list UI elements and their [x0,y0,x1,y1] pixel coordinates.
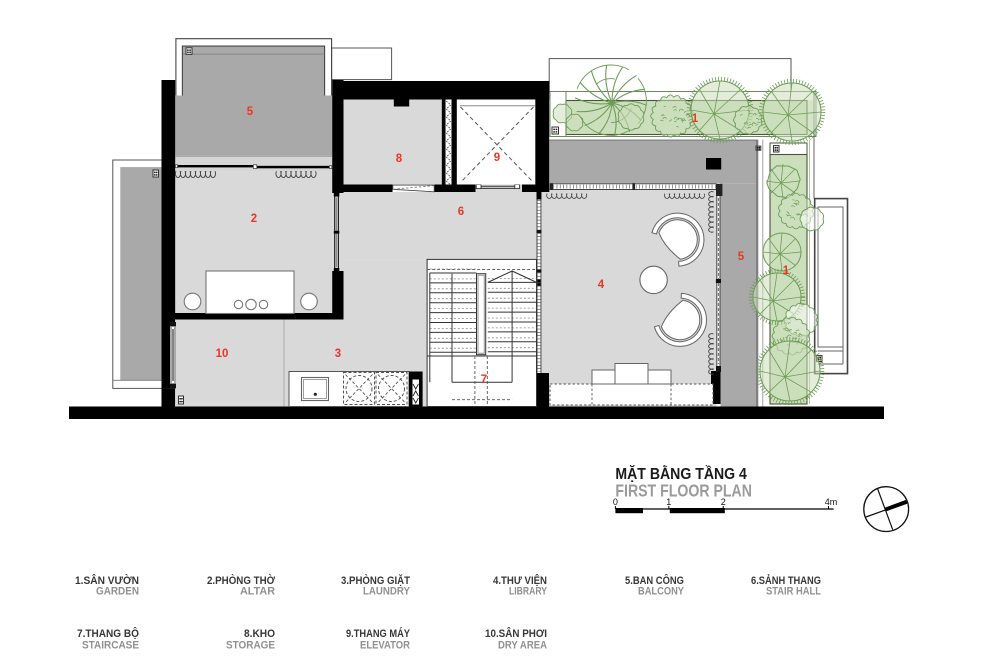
svg-text:LAUNDRY: LAUNDRY [363,586,411,598]
svg-text:10.SÂN PHƠI: 10.SÂN PHƠI [485,627,547,640]
svg-text:10: 10 [216,348,229,360]
svg-text:0: 0 [613,497,618,507]
svg-text:STORAGE: STORAGE [226,640,275,652]
svg-text:STAIRCASE: STAIRCASE [82,640,139,652]
svg-text:ALTAR: ALTAR [240,586,275,598]
svg-text:STAIR HALL: STAIR HALL [766,586,821,598]
svg-text:2: 2 [251,213,257,225]
svg-text:2: 2 [721,497,726,507]
svg-text:1: 1 [692,113,699,125]
svg-text:ELEVATOR: ELEVATOR [360,640,410,652]
svg-text:1: 1 [783,265,790,277]
svg-text:7: 7 [481,374,487,386]
svg-text:1: 1 [666,497,671,507]
svg-text:4m: 4m [825,497,838,507]
svg-text:BALCONY: BALCONY [638,586,685,598]
svg-text:3: 3 [335,348,341,360]
svg-text:4: 4 [598,279,605,291]
svg-text:9.THANG MÁY: 9.THANG MÁY [346,627,411,640]
svg-text:5: 5 [738,251,745,263]
svg-text:7.THANG BỘ: 7.THANG BỘ [77,627,139,640]
svg-text:LIBRARY: LIBRARY [509,586,548,598]
svg-text:9: 9 [494,152,500,164]
svg-text:FIRST FLOOR PLAN: FIRST FLOOR PLAN [615,480,752,500]
svg-text:6: 6 [458,206,464,218]
svg-text:GARDEN: GARDEN [96,586,139,598]
svg-text:8: 8 [396,153,403,165]
svg-text:5: 5 [247,106,254,118]
svg-text:DRY AREA: DRY AREA [498,640,547,652]
svg-text:8.KHO: 8.KHO [244,628,275,640]
